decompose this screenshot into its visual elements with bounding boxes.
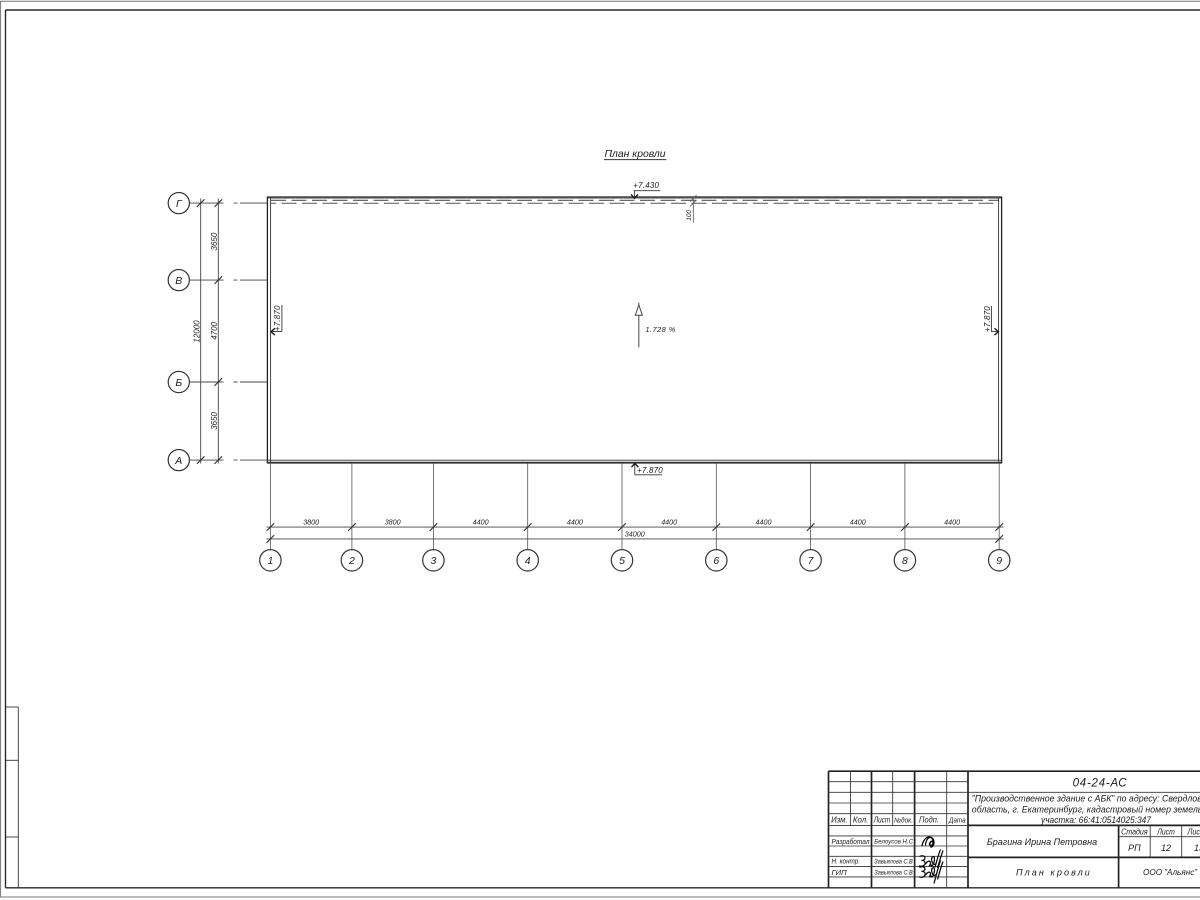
svg-text:№док.: №док.: [894, 816, 913, 824]
svg-text:6: 6: [713, 555, 719, 567]
svg-text:3800: 3800: [303, 517, 319, 526]
svg-text:2: 2: [348, 555, 355, 567]
svg-text:+7.870: +7.870: [637, 466, 663, 475]
svg-text:Б: Б: [175, 377, 182, 389]
svg-text:4400: 4400: [944, 517, 960, 526]
svg-text:ООО ”Альянс”: ООО ”Альянс”: [1143, 867, 1198, 877]
svg-text:Завьялова С.В: Завьялова С.В: [874, 870, 913, 877]
svg-text:1.728 %: 1.728 %: [645, 325, 675, 334]
svg-text:4: 4: [525, 555, 531, 567]
svg-text:13: 13: [1194, 843, 1200, 853]
svg-text:3650: 3650: [210, 411, 219, 429]
svg-text:‟Производственное здание с АБК: ‟Производственное здание с АБК” по адрес…: [972, 794, 1200, 804]
svg-text:Стадия: Стадия: [1121, 827, 1148, 836]
svg-text:Разработал: Разработал: [832, 837, 871, 846]
svg-text:РП: РП: [1128, 843, 1141, 853]
svg-text:Кол.: Кол.: [853, 815, 869, 824]
svg-text:4700: 4700: [210, 321, 219, 339]
svg-text:4400: 4400: [850, 517, 866, 526]
svg-text:5: 5: [619, 555, 625, 567]
svg-text:9: 9: [996, 555, 1002, 567]
svg-text:3800: 3800: [385, 517, 401, 526]
svg-text:100: 100: [686, 210, 693, 221]
svg-text:+7.870: +7.870: [273, 305, 282, 331]
svg-text:План кровли: План кровли: [605, 149, 666, 160]
svg-text:+7.430: +7.430: [633, 181, 659, 190]
svg-text:3650: 3650: [210, 232, 219, 250]
svg-text:12: 12: [1161, 843, 1171, 853]
svg-text:04-24-АС: 04-24-АС: [1073, 778, 1128, 790]
svg-text:Завьялова С.В: Завьялова С.В: [874, 858, 913, 865]
svg-text:Лист: Лист: [1156, 827, 1175, 836]
svg-text:Изм.: Изм.: [831, 815, 848, 824]
svg-text:участка: 66:41:0514025:347: участка: 66:41:0514025:347: [1040, 815, 1152, 825]
svg-text:Подп.: Подп.: [919, 815, 939, 824]
svg-text:4400: 4400: [567, 517, 583, 526]
svg-text:Брагина Ирина Петровна: Брагина Ирина Петровна: [987, 837, 1097, 847]
svg-text:область, г. Екатеринбург, када: область, г. Екатеринбург, кадастровый но…: [972, 804, 1200, 814]
svg-text:1: 1: [267, 555, 273, 567]
svg-text:В: В: [175, 275, 182, 287]
svg-text:А: А: [174, 455, 182, 467]
svg-text:34000: 34000: [625, 530, 645, 539]
svg-text:Белоусов Н.С: Белоусов Н.С: [874, 839, 913, 846]
svg-text:ГИП: ГИП: [832, 868, 848, 877]
svg-text:4400: 4400: [473, 517, 489, 526]
svg-text:Н. контр.: Н. контр.: [832, 857, 861, 866]
svg-text:+7.870: +7.870: [983, 306, 992, 332]
svg-text:8: 8: [902, 555, 908, 567]
svg-text:План кровли: План кровли: [1016, 868, 1092, 878]
svg-text:3: 3: [430, 555, 436, 567]
svg-text:Лист: Лист: [873, 815, 891, 824]
svg-text:Дата: Дата: [948, 815, 965, 824]
svg-text:4400: 4400: [756, 517, 772, 526]
svg-text:4400: 4400: [661, 517, 677, 526]
svg-text:Листов: Листов: [1187, 827, 1200, 836]
svg-text:12000: 12000: [192, 320, 201, 343]
